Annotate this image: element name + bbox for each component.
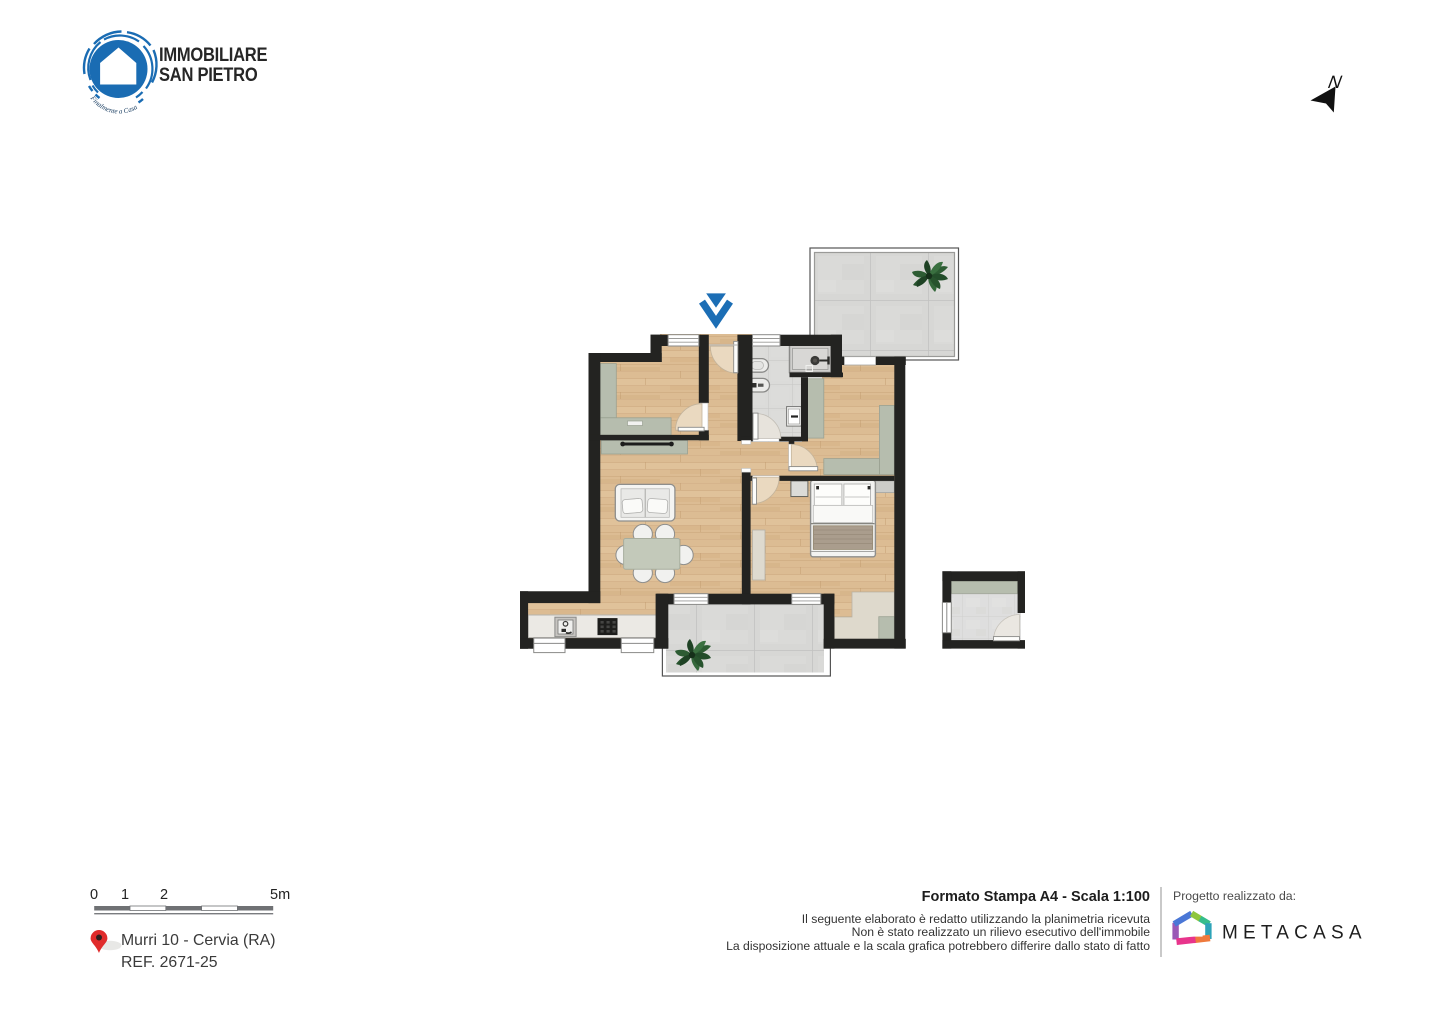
svg-text:1: 1: [121, 887, 129, 903]
svg-text:METACASA: METACASA: [1222, 923, 1367, 944]
svg-text:5m: 5m: [270, 887, 290, 903]
svg-text:2: 2: [160, 887, 168, 903]
svg-text:0: 0: [90, 887, 98, 903]
